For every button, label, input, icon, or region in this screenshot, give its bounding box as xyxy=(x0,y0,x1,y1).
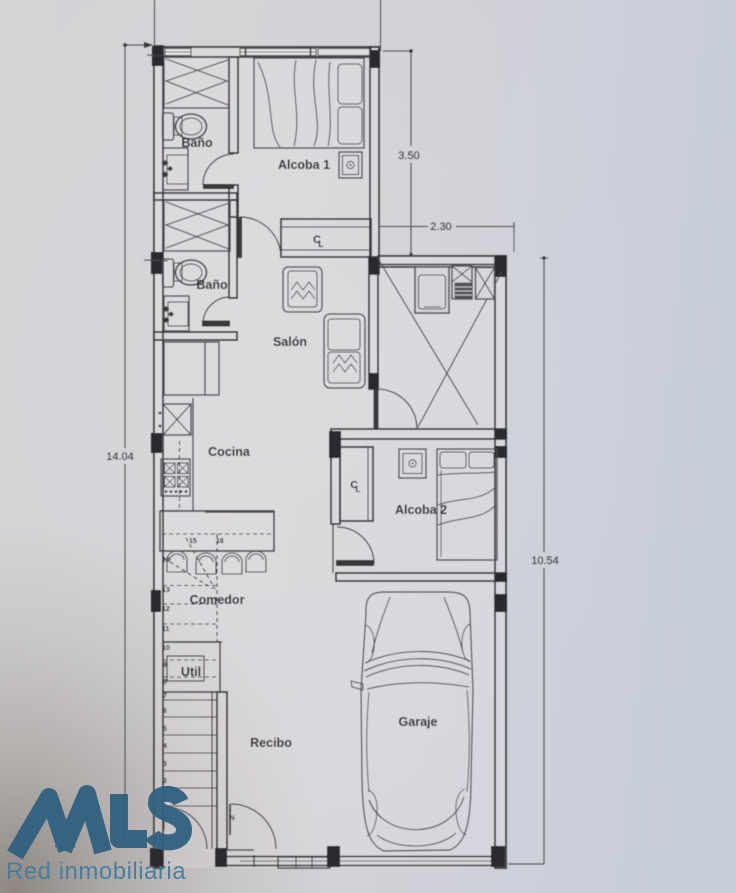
svg-text:9: 9 xyxy=(163,662,167,669)
svg-text:2: 2 xyxy=(163,778,167,785)
svg-text:2.30: 2.30 xyxy=(430,221,451,233)
svg-text:Baño: Baño xyxy=(196,278,228,292)
svg-text:Cocina: Cocina xyxy=(208,445,251,459)
svg-text:Comedor: Comedor xyxy=(190,593,245,607)
svg-text:N: N xyxy=(229,815,234,822)
svg-text:Util: Util xyxy=(181,665,201,679)
svg-text:3: 3 xyxy=(163,761,167,768)
svg-text:L: L xyxy=(318,239,324,249)
svg-text:Baño: Baño xyxy=(181,136,213,150)
svg-text:8: 8 xyxy=(163,679,167,686)
svg-text:10.54: 10.54 xyxy=(531,555,559,567)
svg-text:16: 16 xyxy=(216,538,224,545)
svg-text:10: 10 xyxy=(162,645,170,652)
svg-text:12: 12 xyxy=(162,606,170,613)
svg-text:15: 15 xyxy=(189,538,197,545)
svg-text:Alcoba 1: Alcoba 1 xyxy=(278,158,330,172)
svg-text:3.50: 3.50 xyxy=(398,150,419,162)
svg-text:Garaje: Garaje xyxy=(399,715,438,729)
svg-text:5: 5 xyxy=(163,726,167,733)
svg-text:13: 13 xyxy=(162,587,170,594)
svg-text:Salón: Salón xyxy=(273,335,307,349)
svg-text:Red inmobiliaria: Red inmobiliaria xyxy=(6,858,186,885)
svg-text:11: 11 xyxy=(162,626,170,633)
svg-text:14: 14 xyxy=(162,557,170,564)
svg-text:7: 7 xyxy=(163,693,167,700)
svg-text:Recibo: Recibo xyxy=(250,736,292,750)
svg-text:L: L xyxy=(355,484,360,494)
svg-text:4: 4 xyxy=(163,743,167,750)
svg-text:14.04: 14.04 xyxy=(106,451,134,463)
svg-text:6: 6 xyxy=(163,708,167,715)
svg-text:Alcoba 2: Alcoba 2 xyxy=(395,503,447,517)
